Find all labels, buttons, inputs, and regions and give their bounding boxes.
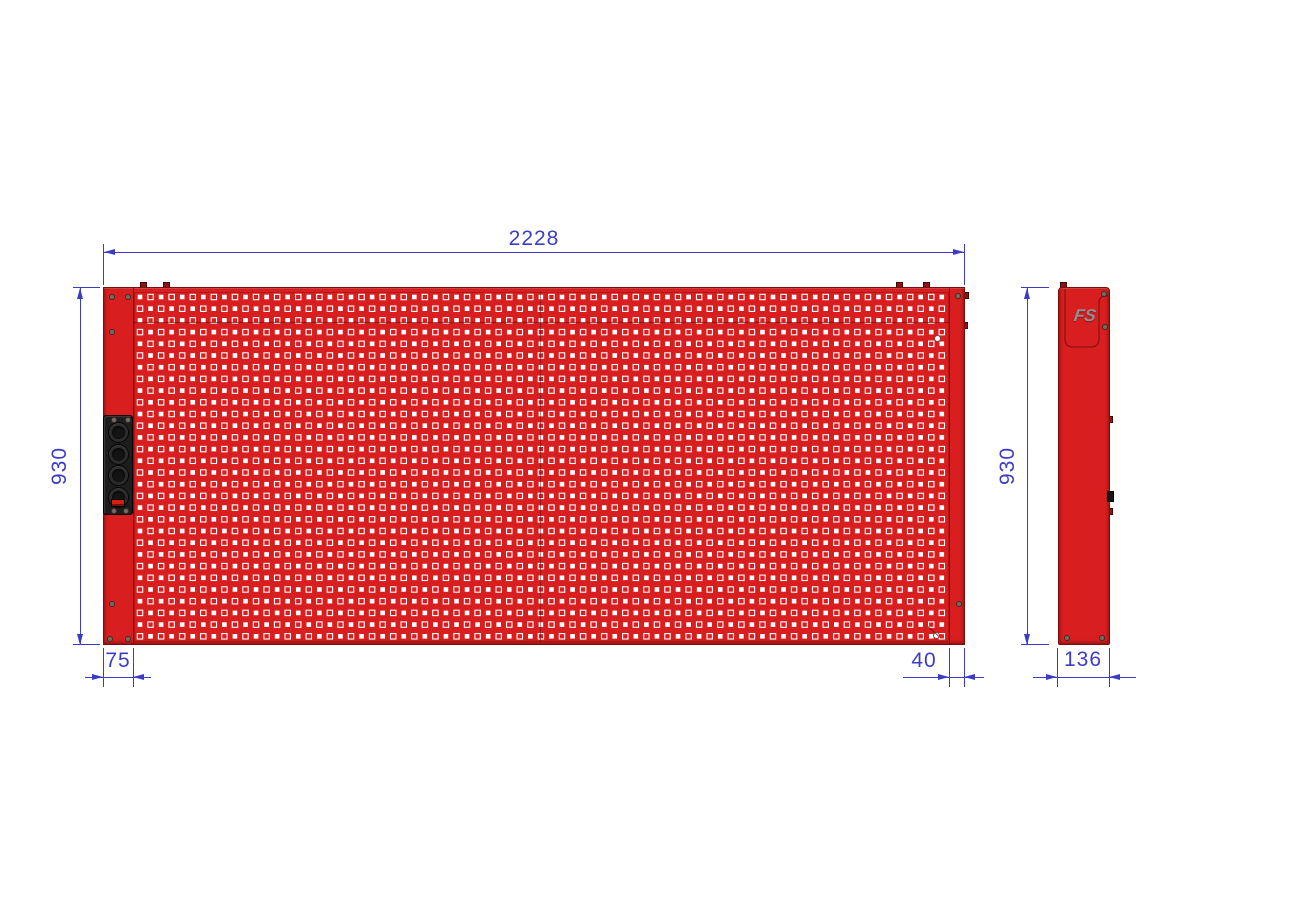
- pegboard-hole-outline: [190, 458, 195, 463]
- pegboard-hole: [201, 622, 206, 627]
- pegboard-hole: [918, 529, 923, 534]
- pegboard-hole: [444, 587, 449, 592]
- pegboard-hole: [665, 295, 670, 300]
- pegboard-hole-outline: [496, 540, 501, 545]
- pegboard-hole-outline: [718, 435, 723, 440]
- pegboard-hole: [676, 447, 681, 452]
- pegboard-hole: [549, 540, 554, 545]
- pegboard-hole-outline: [623, 610, 628, 615]
- pegboard-hole: [929, 400, 934, 405]
- pegboard-hole: [697, 540, 702, 545]
- pegboard-hole: [475, 599, 480, 604]
- pegboard-hole-outline: [148, 388, 153, 393]
- pegboard-hole: [591, 634, 596, 639]
- screw: [111, 417, 117, 423]
- pegboard-hole: [475, 576, 480, 581]
- pegboard-hole-outline: [507, 435, 512, 440]
- pegboard-hole-outline: [813, 610, 818, 615]
- pegboard-hole-outline: [707, 306, 712, 311]
- pegboard-hole: [792, 576, 797, 581]
- pegboard-hole-outline: [190, 294, 195, 299]
- pegboard-hole: [792, 388, 797, 393]
- pegboard-hole: [771, 622, 776, 627]
- pegboard-hole: [750, 529, 755, 534]
- pegboard-hole-outline: [285, 376, 290, 381]
- pegboard-hole-outline: [485, 599, 490, 604]
- pegboard-hole-outline: [517, 563, 522, 568]
- pegboard-hole: [802, 587, 807, 592]
- pegboard-hole-outline: [823, 435, 828, 440]
- pegboard-hole: [264, 622, 269, 627]
- pegboard-hole-outline: [243, 376, 248, 381]
- pegboard-hole-outline: [612, 505, 617, 510]
- pegboard-hole-outline: [675, 341, 680, 346]
- pegboard-hole-outline: [211, 294, 216, 299]
- pegboard-hole-outline: [665, 610, 670, 615]
- pegboard-hole-outline: [865, 575, 870, 580]
- pegboard-hole: [275, 423, 280, 428]
- pegboard-hole-outline: [686, 610, 691, 615]
- pegboard-hole-outline: [855, 493, 860, 498]
- pegboard-hole: [138, 342, 143, 347]
- pegboard-hole-outline: [369, 376, 374, 381]
- pegboard-hole: [707, 576, 712, 581]
- pegboard-hole-outline: [306, 376, 311, 381]
- pegboard-hole-outline: [644, 517, 649, 522]
- pegboard-hole-outline: [675, 294, 680, 299]
- pegboard-hole-outline: [475, 610, 480, 615]
- pegboard-hole-outline: [855, 353, 860, 358]
- pegboard-hole: [823, 540, 828, 545]
- pegboard-hole-outline: [929, 435, 934, 440]
- pegboard-hole-outline: [401, 552, 406, 557]
- arrow-left-icon: [1109, 674, 1120, 680]
- pegboard-hole: [876, 412, 881, 417]
- pegboard-hole: [465, 517, 470, 522]
- pegboard-hole: [887, 540, 892, 545]
- pegboard-hole: [929, 423, 934, 428]
- pegboard-hole-outline: [169, 599, 174, 604]
- pegboard-hole: [707, 435, 712, 440]
- pegboard-hole-outline: [464, 505, 469, 510]
- pegboard-hole: [591, 400, 596, 405]
- pegboard-hole: [285, 365, 290, 370]
- pegboard-hole-outline: [264, 634, 269, 639]
- pegboard-hole: [644, 529, 649, 534]
- pegboard-hole-outline: [591, 341, 596, 346]
- pegboard-hole: [549, 353, 554, 358]
- pegboard-hole: [307, 505, 312, 510]
- pegboard-hole-outline: [211, 411, 216, 416]
- pegboard-hole-outline: [380, 411, 385, 416]
- pegboard-hole-outline: [739, 458, 744, 463]
- pegboard-hole-outline: [412, 470, 417, 475]
- pegboard-hole-outline: [696, 528, 701, 533]
- pegboard-hole: [591, 470, 596, 475]
- pegboard-hole-outline: [348, 540, 353, 545]
- pegboard-hole: [307, 365, 312, 370]
- pegboard-hole: [148, 400, 153, 405]
- pegboard-hole-outline: [190, 505, 195, 510]
- pegboard-hole: [412, 576, 417, 581]
- pegboard-hole: [644, 576, 649, 581]
- pegboard-hole: [233, 400, 238, 405]
- pegboard-hole: [243, 505, 248, 510]
- pegboard-hole-outline: [760, 505, 765, 510]
- pegboard-hole: [391, 576, 396, 581]
- pegboard-hole-outline: [644, 446, 649, 451]
- pegboard-hole: [644, 412, 649, 417]
- pegboard-hole-outline: [338, 388, 343, 393]
- pegboard-hole: [169, 306, 174, 311]
- pegboard-hole-outline: [602, 306, 607, 311]
- pegboard-hole: [697, 306, 702, 311]
- pegboard-hole-outline: [760, 599, 765, 604]
- pegboard-hole-outline: [612, 528, 617, 533]
- pegboard-hole-outline: [549, 365, 554, 370]
- pegboard-hole: [602, 622, 607, 627]
- pegboard-hole-outline: [317, 365, 322, 370]
- pegboard-hole: [729, 295, 734, 300]
- pegboard-hole: [475, 622, 480, 627]
- pegboard-hole-outline: [633, 435, 638, 440]
- pegboard-hole-outline: [654, 482, 659, 487]
- pegboard-hole: [138, 622, 143, 627]
- pegboard-hole-outline: [243, 587, 248, 592]
- pegboard-hole-outline: [264, 587, 269, 592]
- pegboard-hole: [612, 470, 617, 475]
- pegboard-hole: [528, 447, 533, 452]
- pegboard-hole: [823, 587, 828, 592]
- pegboard-hole: [285, 552, 290, 557]
- pegboard-hole-outline: [897, 400, 902, 405]
- pegboard-hole: [222, 482, 227, 487]
- pegboard-hole: [665, 412, 670, 417]
- pegboard-hole-outline: [201, 587, 206, 592]
- pegboard-hole: [855, 552, 860, 557]
- pegboard-hole: [264, 529, 269, 534]
- pegboard-hole: [929, 353, 934, 358]
- pegboard-hole: [897, 388, 902, 393]
- pegboard-hole-outline: [644, 353, 649, 358]
- pegboard-hole: [623, 622, 628, 627]
- pegboard-hole: [887, 564, 892, 569]
- pegboard-hole: [602, 342, 607, 347]
- pegboard-hole-outline: [422, 341, 427, 346]
- pegboard-hole-outline: [834, 493, 839, 498]
- pegboard-hole: [897, 435, 902, 440]
- pegboard-hole: [528, 540, 533, 545]
- pegboard-hole-outline: [855, 634, 860, 639]
- pegboard-hole-outline: [939, 353, 944, 358]
- pegboard-hole-outline: [148, 458, 153, 463]
- pegboard-hole-outline: [549, 482, 554, 487]
- pegboard-hole: [813, 576, 818, 581]
- screw: [1064, 635, 1070, 641]
- screw: [123, 508, 129, 514]
- pegboard-hole-outline: [781, 388, 786, 393]
- pegboard-hole-outline: [802, 482, 807, 487]
- pegboard-hole-outline: [760, 365, 765, 370]
- pegboard-hole: [729, 552, 734, 557]
- pegboard-hole: [771, 388, 776, 393]
- pegboard-hole-outline: [623, 376, 628, 381]
- pegboard-hole-outline: [791, 423, 796, 428]
- pegboard-hole: [507, 330, 512, 335]
- pegboard-hole-outline: [243, 329, 248, 334]
- screw: [1102, 324, 1108, 330]
- pegboard-hole-outline: [507, 365, 512, 370]
- pegboard-hole: [591, 587, 596, 592]
- pegboard-hole: [222, 576, 227, 581]
- pegboard-hole-outline: [823, 505, 828, 510]
- pegboard-hole: [496, 342, 501, 347]
- pegboard-hole-outline: [570, 365, 575, 370]
- pegboard-hole-outline: [296, 575, 301, 580]
- pegboard-hole: [444, 330, 449, 335]
- pegboard-hole: [349, 552, 354, 557]
- pegboard-hole-outline: [549, 528, 554, 533]
- pegboard-hole-outline: [327, 563, 332, 568]
- pegboard-hole: [855, 599, 860, 604]
- pegboard-hole: [338, 494, 343, 499]
- pegboard-hole-outline: [433, 540, 438, 545]
- pegboard-hole: [328, 342, 333, 347]
- pegboard-hole-outline: [834, 587, 839, 592]
- pegboard-hole: [465, 540, 470, 545]
- pegboard-hole: [454, 576, 459, 581]
- pegboard-hole-outline: [158, 587, 163, 592]
- pegboard-hole: [549, 423, 554, 428]
- pegboard-hole-outline: [696, 435, 701, 440]
- pegboard-hole-outline: [180, 540, 185, 545]
- power-socket: [108, 422, 129, 443]
- pegboard-hole-outline: [781, 482, 786, 487]
- pegboard-hole-outline: [707, 470, 712, 475]
- pegboard-hole-outline: [201, 329, 206, 334]
- pegboard-hole: [507, 611, 512, 616]
- pegboard-hole: [591, 330, 596, 335]
- pegboard-hole-outline: [770, 587, 775, 592]
- pegboard-hole-outline: [137, 329, 142, 334]
- pegboard-hole-outline: [644, 563, 649, 568]
- pegboard-hole-outline: [369, 493, 374, 498]
- pegboard-hole-outline: [696, 411, 701, 416]
- pegboard-hole-outline: [749, 376, 754, 381]
- pegboard-hole: [507, 447, 512, 452]
- pegboard-hole-outline: [834, 446, 839, 451]
- pegboard-hole-outline: [802, 528, 807, 533]
- pegboard-hole-outline: [232, 294, 237, 299]
- pegboard-hole: [802, 330, 807, 335]
- pegboard-hole-outline: [348, 423, 353, 428]
- pegboard-hole-outline: [507, 294, 512, 299]
- pegboard-hole: [665, 552, 670, 557]
- pegboard-hole: [845, 400, 850, 405]
- pegboard-hole-outline: [137, 634, 142, 639]
- pegboard-hole: [169, 517, 174, 522]
- pegboard-hole-outline: [496, 517, 501, 522]
- pegboard-hole-outline: [907, 552, 912, 557]
- pegboard-hole: [328, 529, 333, 534]
- pegboard-hole-outline: [834, 376, 839, 381]
- pegboard-hole: [486, 634, 491, 639]
- pegboard-hole-outline: [844, 435, 849, 440]
- pegboard-hole: [444, 377, 449, 382]
- pegboard-hole-outline: [222, 587, 227, 592]
- pegboard-hole: [581, 459, 586, 464]
- pegboard-hole-outline: [317, 294, 322, 299]
- pegboard-hole-outline: [876, 493, 881, 498]
- pegboard-hole: [570, 377, 575, 382]
- pegboard-hole: [834, 482, 839, 487]
- pegboard-hole: [876, 388, 881, 393]
- pegboard-hole: [834, 388, 839, 393]
- pegboard-hole: [169, 470, 174, 475]
- pegboard-hole-outline: [264, 446, 269, 451]
- pegboard-hole: [802, 423, 807, 428]
- pegboard-hole-outline: [623, 563, 628, 568]
- pegboard-hole-outline: [654, 411, 659, 416]
- pegboard-hole: [813, 388, 818, 393]
- pegboard-hole: [212, 330, 217, 335]
- pegboard-hole: [792, 365, 797, 370]
- pegboard-hole: [834, 412, 839, 417]
- pegboard-hole-outline: [865, 388, 870, 393]
- pegboard-hole-outline: [602, 470, 607, 475]
- pegboard-hole: [655, 587, 660, 592]
- pegboard-hole: [423, 564, 428, 569]
- pegboard-hole-outline: [507, 599, 512, 604]
- pegboard-hole: [433, 342, 438, 347]
- pegboard-hole-outline: [517, 376, 522, 381]
- pegboard-hole: [750, 459, 755, 464]
- pegboard-hole: [549, 587, 554, 592]
- pegboard-hole-outline: [180, 493, 185, 498]
- pegboard-hole: [760, 587, 765, 592]
- pegboard-hole: [423, 377, 428, 382]
- pegboard-hole: [370, 622, 375, 627]
- extension-line-right: [1109, 648, 1110, 687]
- pegboard-hole-outline: [306, 400, 311, 405]
- pegboard-hole: [475, 552, 480, 557]
- pegboard-hole: [781, 306, 786, 311]
- pegboard-hole: [148, 330, 153, 335]
- pegboard-hole-outline: [918, 540, 923, 545]
- pegboard-hole-outline: [359, 388, 364, 393]
- pegboard-hole: [729, 505, 734, 510]
- pegboard-hole-outline: [728, 353, 733, 358]
- pegboard-hole: [307, 599, 312, 604]
- pegboard-hole: [507, 587, 512, 592]
- pegboard-hole: [697, 400, 702, 405]
- pegboard-hole: [834, 342, 839, 347]
- pegboard-hole-outline: [454, 329, 459, 334]
- pegboard-hole: [739, 330, 744, 335]
- pegboard-hole: [760, 611, 765, 616]
- pegboard-hole: [391, 412, 396, 417]
- pegboard-hole-outline: [528, 528, 533, 533]
- pegboard-hole: [929, 306, 934, 311]
- screw-light: [934, 335, 941, 342]
- pegboard-hole-outline: [190, 411, 195, 416]
- pegboard-hole-outline: [274, 388, 279, 393]
- pegboard-hole: [676, 400, 681, 405]
- pegboard-hole: [570, 587, 575, 592]
- pegboard-hole: [940, 388, 945, 393]
- pegboard-hole: [908, 611, 913, 616]
- pegboard-hole-outline: [865, 294, 870, 299]
- pegboard-hole: [486, 494, 491, 499]
- pegboard-hole-outline: [791, 540, 796, 545]
- pegboard-hole-outline: [865, 622, 870, 627]
- pegboard-hole: [307, 412, 312, 417]
- pegboard-hole: [802, 564, 807, 569]
- pegboard-hole-outline: [243, 423, 248, 428]
- pegboard-hole-outline: [823, 575, 828, 580]
- pegboard-hole: [444, 634, 449, 639]
- pegboard-hole: [612, 587, 617, 592]
- pegboard-hole: [781, 377, 786, 382]
- pegboard-hole-outline: [422, 505, 427, 510]
- pegboard-hole-outline: [433, 376, 438, 381]
- pegboard-hole: [222, 599, 227, 604]
- arrow-left-icon: [133, 674, 144, 680]
- pegboard-hole: [686, 388, 691, 393]
- pegboard-hole: [233, 494, 238, 499]
- pegboard-hole-outline: [222, 470, 227, 475]
- pegboard-hole: [718, 447, 723, 452]
- pegboard-hole-outline: [549, 411, 554, 416]
- pegboard-hole: [254, 400, 259, 405]
- pegboard-hole-outline: [137, 306, 142, 311]
- pegboard-hole: [602, 435, 607, 440]
- pegboard-hole-outline: [876, 470, 881, 475]
- pegboard-hole: [655, 423, 660, 428]
- pegboard-hole-outline: [570, 294, 575, 299]
- pegboard-hole-outline: [158, 400, 163, 405]
- pegboard-hole: [876, 529, 881, 534]
- pegboard-hole: [845, 353, 850, 358]
- pegboard-hole: [528, 494, 533, 499]
- pegboard-hole-outline: [570, 575, 575, 580]
- pegboard-hole: [866, 377, 871, 382]
- pegboard-hole-outline: [665, 587, 670, 592]
- pegboard-hole: [707, 622, 712, 627]
- pegboard-hole: [475, 482, 480, 487]
- pegboard-hole-outline: [696, 341, 701, 346]
- pegboard-hole-outline: [454, 610, 459, 615]
- pegboard-hole: [328, 622, 333, 627]
- pegboard-hole-outline: [633, 294, 638, 299]
- pegboard-hole-outline: [137, 353, 142, 358]
- pegboard-hole-outline: [823, 622, 828, 627]
- pegboard-hole: [338, 400, 343, 405]
- pegboard-hole: [570, 470, 575, 475]
- pegboard-hole: [549, 634, 554, 639]
- pegboard-hole: [792, 459, 797, 464]
- pegboard-hole: [855, 576, 860, 581]
- pegboard-hole-outline: [855, 610, 860, 615]
- pegboard-hole: [444, 611, 449, 616]
- pegboard-hole: [676, 587, 681, 592]
- pegboard-hole: [254, 494, 259, 499]
- pegboard-hole-outline: [876, 306, 881, 311]
- pegboard-hole: [518, 365, 523, 370]
- pegboard-hole-outline: [580, 353, 585, 358]
- pegboard-hole: [296, 306, 301, 311]
- pegboard-hole-outline: [369, 540, 374, 545]
